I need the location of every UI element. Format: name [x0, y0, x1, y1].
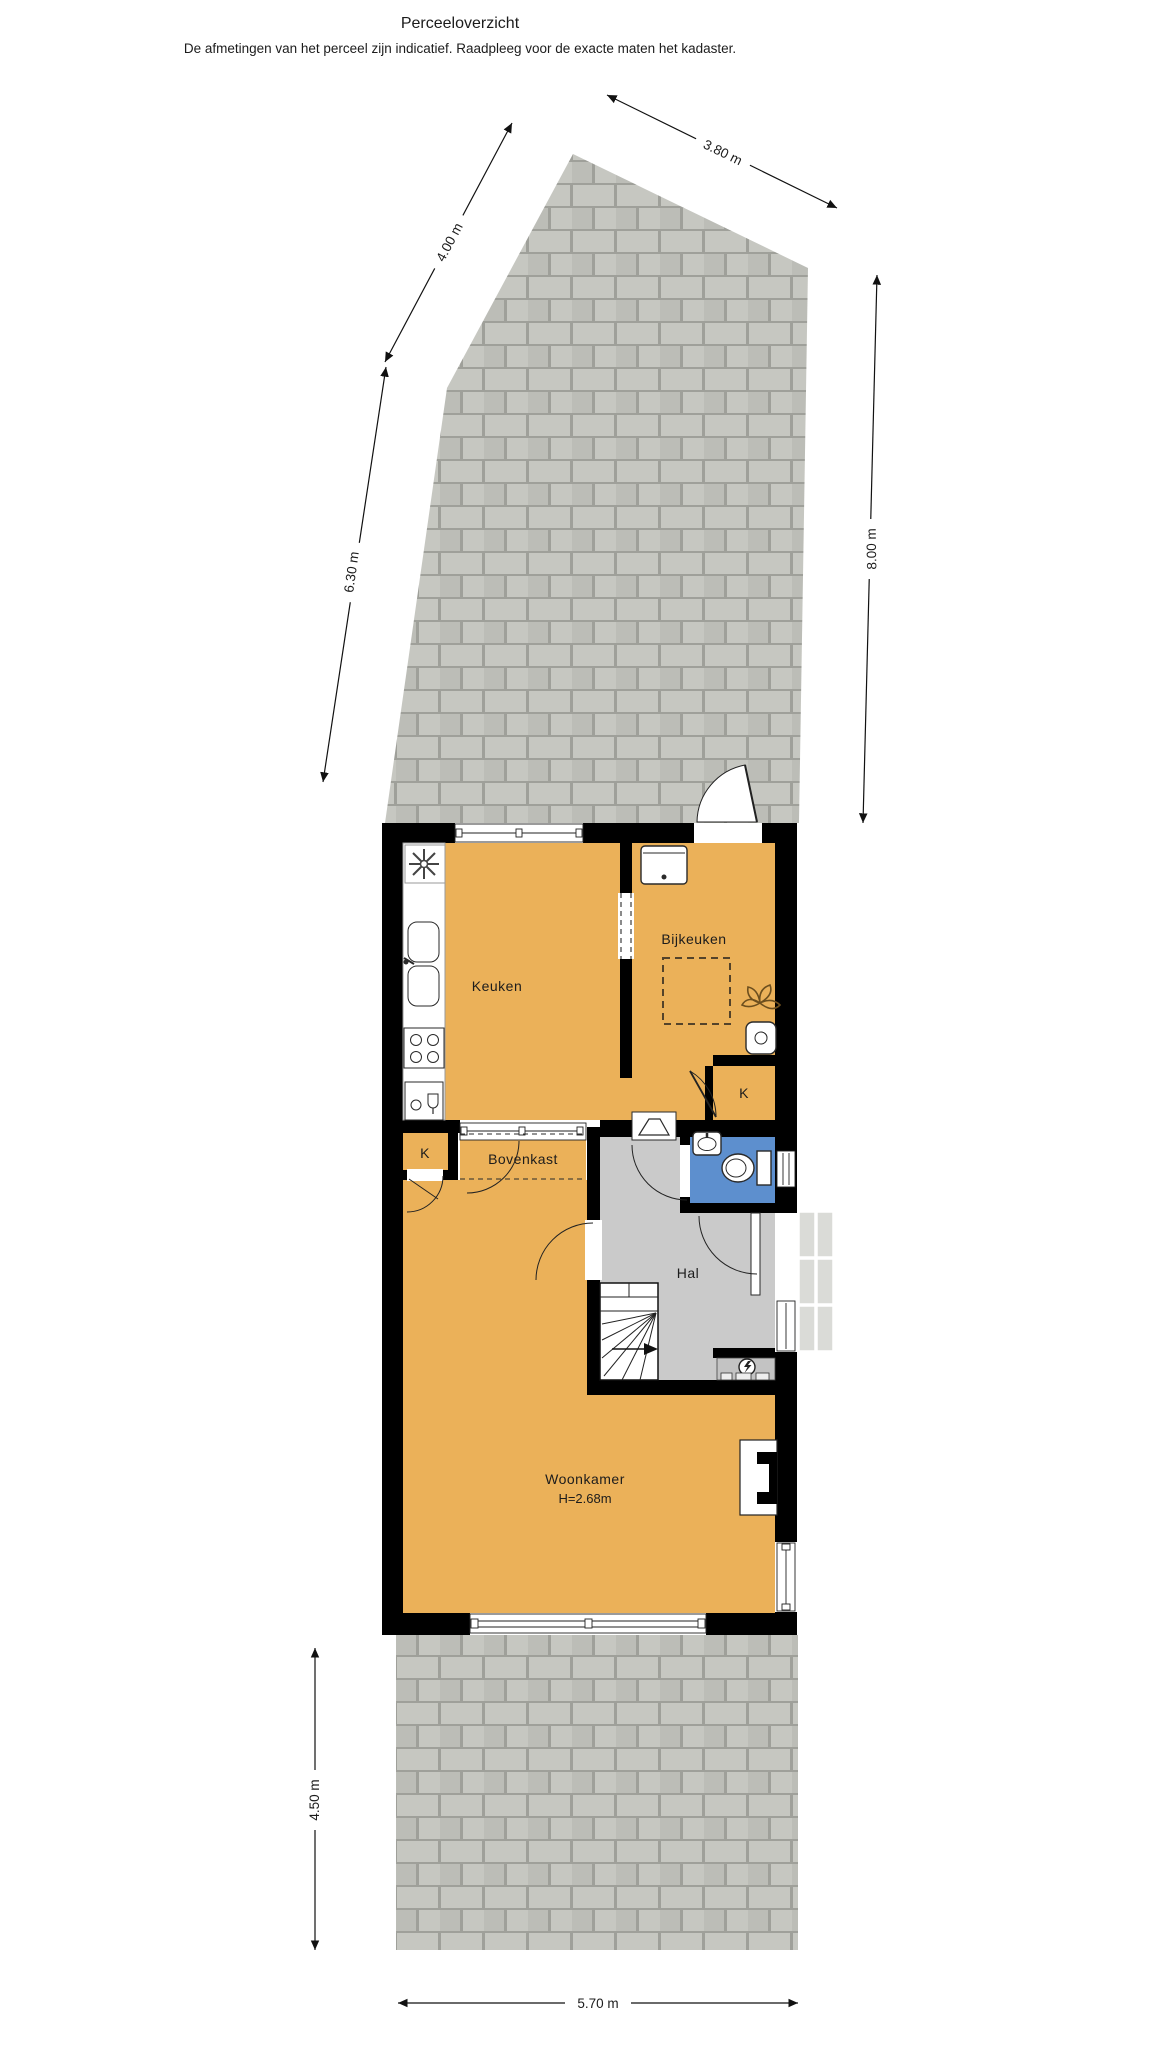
door-bijkeuken-hal: [632, 1112, 676, 1140]
label-kast-right: K: [739, 1085, 749, 1101]
disclaimer-text: De afmetingen van het perceel zijn indic…: [184, 41, 736, 56]
dishwasher-icon: [405, 1082, 443, 1120]
stairs-icon: [600, 1283, 658, 1380]
window-woonkamer-bottom: [470, 1614, 706, 1633]
window-keuken: [455, 824, 583, 842]
kitchen-counter: [403, 843, 445, 1120]
dimension-8-00: 8.00 m: [861, 275, 880, 823]
front-door-sidelight: [777, 1301, 795, 1351]
hob-icon: [404, 1028, 444, 1068]
paving-bottom: [396, 1635, 798, 1950]
label-woonkamer: Woonkamer: [545, 1471, 625, 1487]
dimension-label: 4.00 m: [433, 220, 466, 263]
dimension-label: 8.00 m: [864, 528, 880, 570]
opening-keuken-bijkeuken: [618, 893, 634, 959]
back-door-opening: [694, 823, 762, 843]
room-keuken-bijkeuken-area: [403, 843, 775, 1120]
label-keuken: Keuken: [472, 978, 522, 994]
room-woonkamer-left: [403, 1180, 587, 1613]
meter-cupboard: [717, 1358, 775, 1380]
laundry-sink-icon: [746, 1022, 776, 1054]
floor-plan-svg: Perceeloverzicht De afmetingen van het p…: [0, 0, 1152, 2048]
label-bijkeuken: Bijkeuken: [661, 931, 726, 947]
dimension-4-50: 4.50 m: [305, 1648, 323, 1950]
electric-meter-icon: [739, 1359, 755, 1375]
window-woonkamer-right: [777, 1543, 795, 1611]
label-woonkamer-height: H=2.68m: [558, 1491, 611, 1506]
washing-machine-icon: [641, 846, 687, 884]
dimension-label: 3.80 m: [701, 137, 745, 169]
hand-basin-icon: [693, 1132, 721, 1155]
label-hal: Hal: [677, 1265, 700, 1281]
label-kast-left: K: [420, 1145, 430, 1161]
porch-tiles: [799, 1212, 833, 1351]
label-bovenkast: Bovenkast: [488, 1151, 558, 1167]
dimension-label: 5.70 m: [577, 1996, 618, 2011]
dimension-5-70: 5.70 m: [398, 1994, 798, 2012]
dimension-label: 4.50 m: [307, 1779, 322, 1820]
toilet-icon: [722, 1151, 771, 1185]
dimension-6-30: 6.30 m: [323, 367, 386, 782]
extractor-fan-icon: [405, 845, 445, 883]
floor-plan-page: Perceeloverzicht De afmetingen van het p…: [0, 0, 1152, 2048]
fireplace-icon: [740, 1440, 777, 1515]
window-toilet: [777, 1151, 795, 1187]
page-title: Perceeloverzicht: [401, 15, 520, 32]
